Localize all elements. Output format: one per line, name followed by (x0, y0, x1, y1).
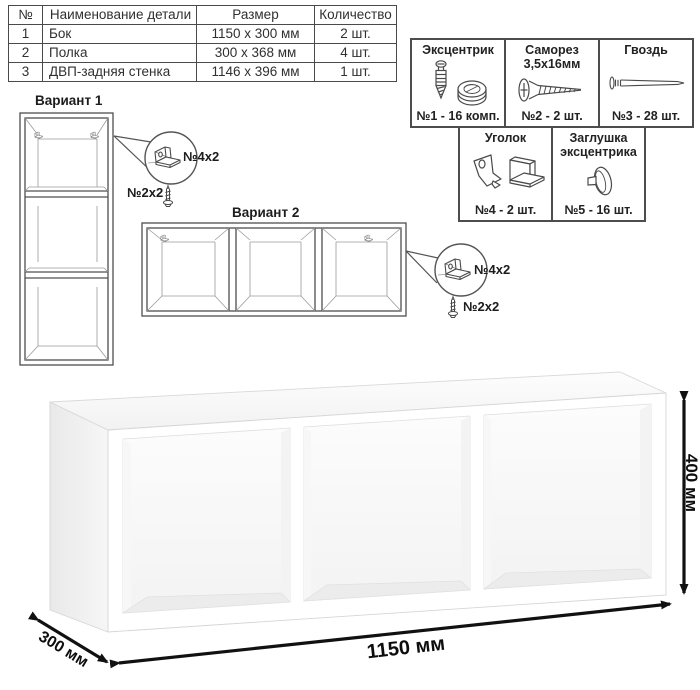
assembly-instruction-sheet: № Наименование детали Размер Количество … (0, 0, 700, 690)
variant1-title: Вариант 1 (35, 93, 102, 108)
callout-leader (406, 251, 438, 283)
variant1-screw-label: №2х2 (127, 185, 163, 200)
corner-bracket-mark-icon (91, 132, 99, 139)
variant2-screw-label: №2х2 (463, 299, 499, 314)
diagram-linework (0, 0, 700, 690)
screw-callout-icon (448, 295, 457, 318)
screw-callout-icon (163, 184, 172, 207)
variant1-drawing (20, 113, 197, 365)
variant2-title: Вариант 2 (232, 205, 299, 220)
corner-bracket-mark-icon (365, 235, 373, 242)
corner-bracket-mark-icon (161, 235, 169, 242)
variant2-bracket-label: №4х2 (474, 262, 510, 277)
variant1-bracket-label: №4х2 (183, 149, 219, 164)
variant2-drawing (142, 223, 487, 318)
assembled-unit-drawing (50, 372, 666, 632)
height-dimension-label: 400 мм (681, 443, 700, 523)
corner-bracket-mark-icon (35, 132, 43, 139)
